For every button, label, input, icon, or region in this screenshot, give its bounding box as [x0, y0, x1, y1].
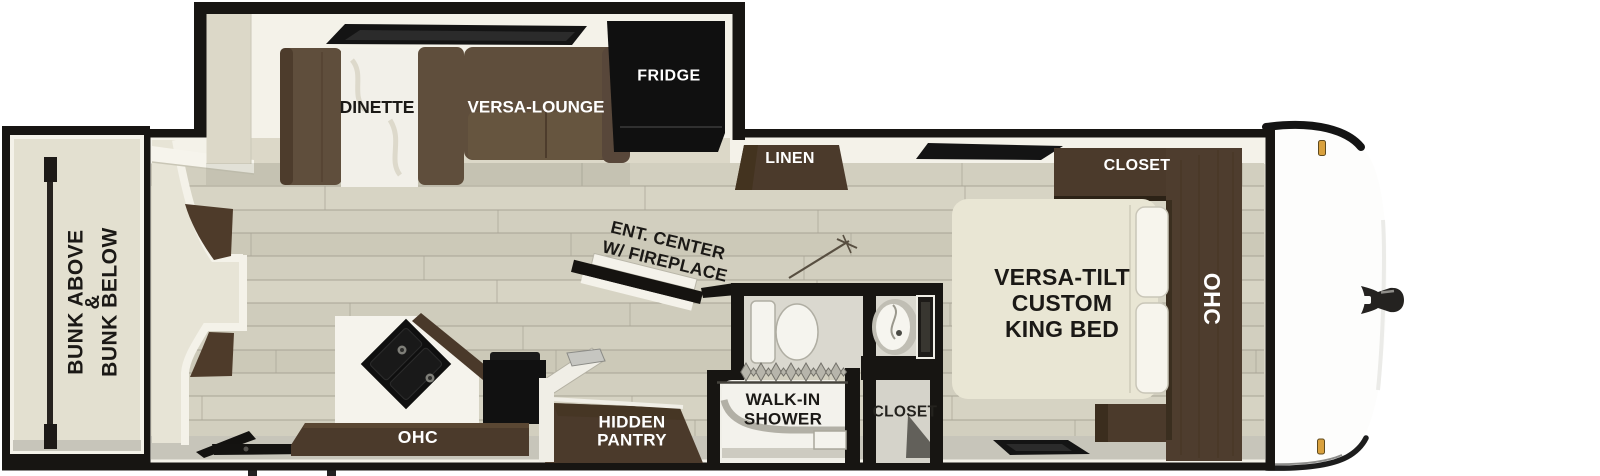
svg-text:FRIDGE: FRIDGE: [637, 68, 700, 85]
svg-text:PANTRY: PANTRY: [597, 430, 667, 449]
svg-text:OHC: OHC: [398, 427, 438, 447]
svg-text:CLOSET: CLOSET: [1104, 157, 1171, 174]
svg-text:LINEN: LINEN: [765, 150, 815, 167]
svg-text:HIDDEN: HIDDEN: [599, 412, 666, 431]
svg-text:DINETTE: DINETTE: [340, 97, 415, 117]
svg-text:VERSA-LOUNGE: VERSA-LOUNGE: [468, 98, 605, 117]
svg-text:CUSTOM: CUSTOM: [1012, 290, 1112, 316]
svg-text:CLOSET: CLOSET: [873, 403, 938, 420]
svg-text:BUNK BELOW: BUNK BELOW: [98, 227, 121, 377]
svg-text:KING BED: KING BED: [1005, 316, 1119, 342]
svg-text:VERSA-TILT: VERSA-TILT: [994, 264, 1130, 290]
svg-text:SHOWER: SHOWER: [744, 409, 822, 428]
svg-text:OHC: OHC: [1199, 273, 1225, 326]
svg-text:WALK-IN: WALK-IN: [746, 390, 821, 409]
